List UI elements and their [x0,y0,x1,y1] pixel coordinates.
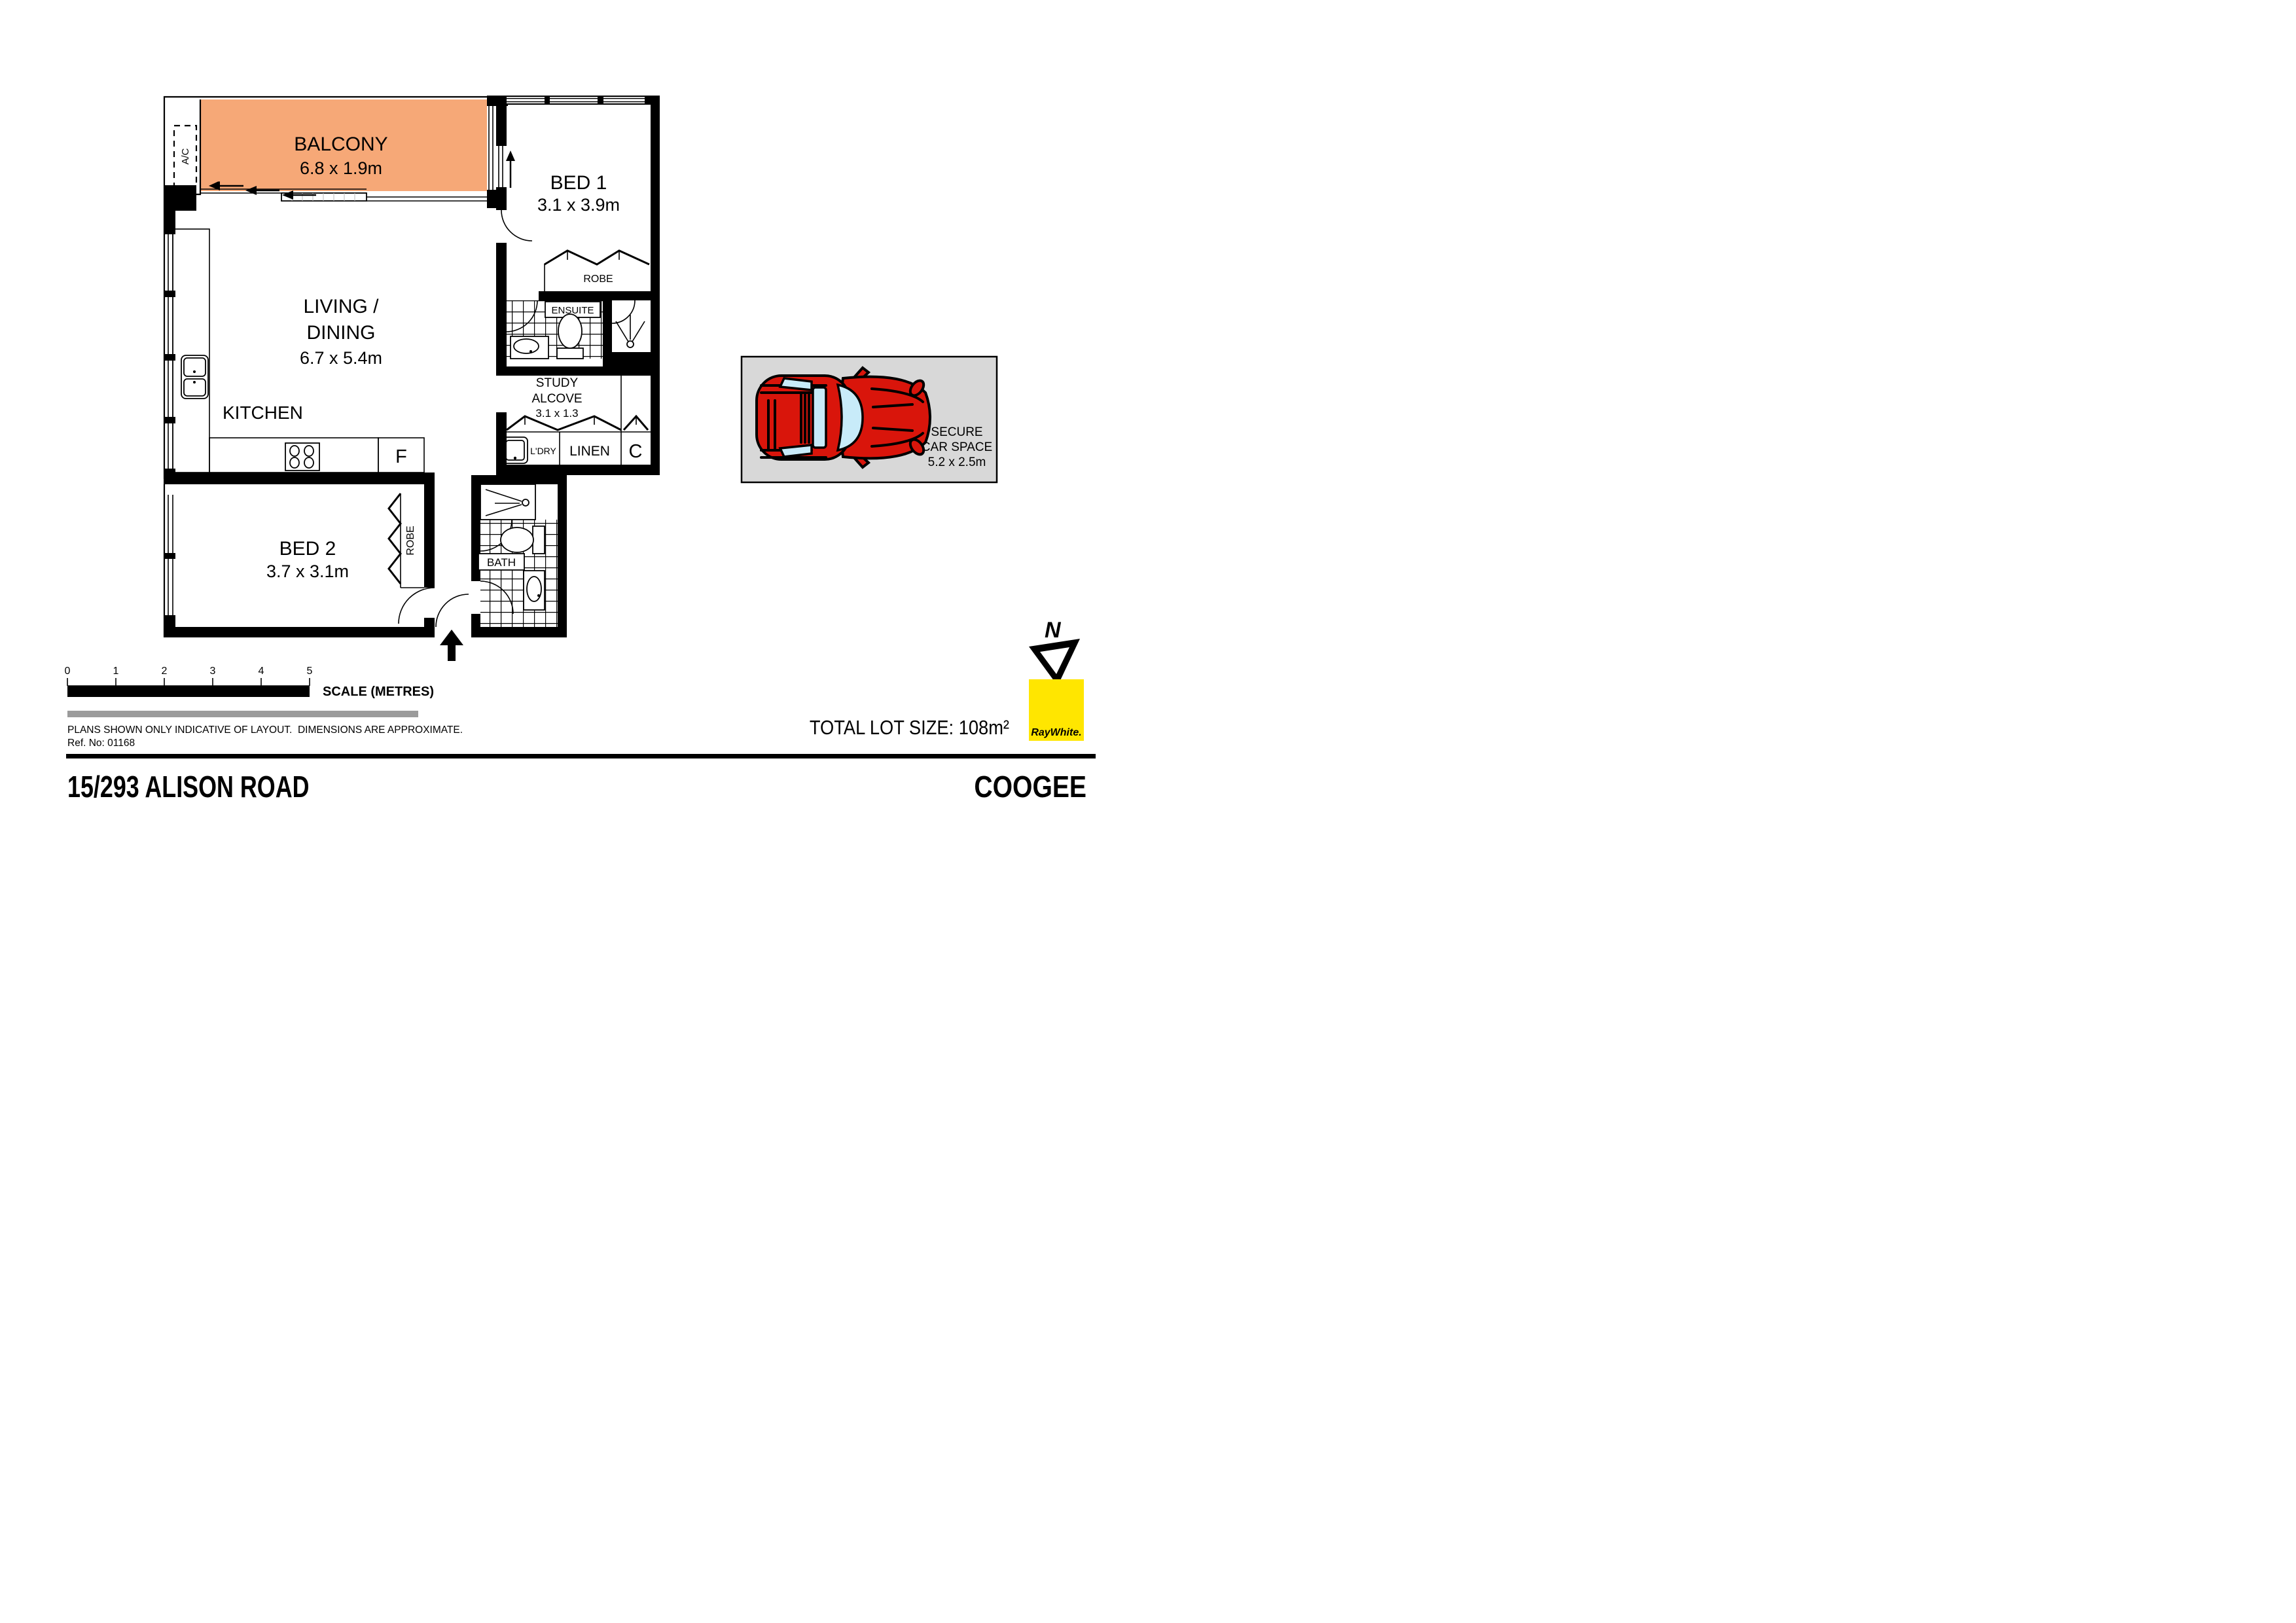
scale-tick-4: 4 [259,666,264,677]
ref-no: Ref. No: 01168 [67,738,135,749]
north-label: N [1045,618,1062,643]
study-dims: 3.1 x 1.3 [535,407,578,419]
toilet-icon [557,314,583,359]
scale-label: SCALE (METRES) [323,685,434,699]
entry-arrow-icon [440,630,463,661]
scale-bar: 0 1 2 3 4 5 SCALE (METRES) [65,666,434,717]
ac-unit: A/C [169,99,200,194]
north-arrow-icon: N [1029,618,1080,686]
ensuite-shower [612,300,645,348]
bed1-robe: ROBE [545,251,649,291]
scale-tick-5: 5 [307,666,313,677]
kitchen: F KITCHEN [173,229,424,473]
scale-tick-0: 0 [65,666,71,677]
raywhite-logo-text: RayWhite. [1031,727,1081,738]
balcony-room: A/C BALCONY 6.8 x 1.9m [164,96,508,211]
bed1-dims: 3.1 x 3.9m [537,195,620,215]
living-dims: 6.7 x 5.4m [300,348,382,368]
bed1-room: BED 1 3.1 x 3.9m ROBE [487,96,660,300]
cupboard-label: C [629,441,643,462]
study-line2: ALCOVE [531,392,582,406]
bed2-robe-label: ROBE [405,526,416,555]
cooktop-icon [285,443,319,471]
floor-plan-canvas: A/C BALCONY 6.8 x 1.9m [0,0,1148,811]
basin-icon [511,336,548,359]
entry [436,594,469,661]
balcony-dims: 6.8 x 1.9m [300,158,382,178]
laundry-label: L'DRY [530,446,556,456]
scale-tick-2: 2 [162,666,168,677]
total-lot-size: TOTAL LOT SIZE: 108m² [810,717,1009,739]
linen-label: LINEN [569,444,610,459]
car-space: SECURE CAR SPACE 5.2 x 2.5m [742,357,997,482]
disclaimer: PLANS SHOWN ONLY INDICATIVE OF LAYOUT. D… [67,724,463,736]
bath-label: BATH [487,556,516,569]
car-space-line2: CAR SPACE [922,440,992,454]
living-left-wall [164,209,175,484]
living-line1: LIVING / [303,296,379,317]
raywhite-logo: RayWhite. [1029,679,1084,741]
basin-icon [524,571,545,610]
balcony-name: BALCONY [294,134,387,155]
car-space-dims: 5.2 x 2.5m [928,455,986,469]
bed1-windows [501,97,645,103]
footer-rule [66,754,1096,758]
floor-plan-page: A/C BALCONY 6.8 x 1.9m [0,0,1148,811]
car-icon [757,368,930,467]
suburb: COOGEE [974,770,1086,804]
fridge-label: F [395,446,407,467]
bed2-name: BED 2 [279,538,336,560]
kitchen-sink-icon [181,355,208,399]
study-alcove: STUDY ALCOVE 3.1 x 1.3 [507,376,648,432]
address: 15/293 ALISON ROAD [67,770,310,804]
bed1-name: BED 1 [550,172,607,194]
bed1-door-arc [501,210,532,241]
study-line1: STUDY [536,376,579,390]
footer: PLANS SHOWN ONLY INDICATIVE OF LAYOUT. D… [66,717,1096,804]
living-room: LIVING / DINING 6.7 x 5.4m [300,296,382,368]
bed1-robe-label: ROBE [583,274,613,285]
bed2-robe: ROBE [389,493,424,588]
scale-tick-1: 1 [113,666,119,677]
ensuite-room: ENSUITE [496,300,660,376]
ac-label: A/C [180,148,191,164]
car-space-line1: SECURE [931,425,982,439]
fridge-space: F [378,438,424,473]
scale-tick-3: 3 [210,666,216,677]
bath-room: BATH [471,475,567,637]
bed2-room: BED 2 3.7 x 3.1m ROBE [164,473,435,637]
living-line2: DINING [307,322,376,344]
bed2-dims: 3.7 x 3.1m [266,562,349,581]
kitchen-label: KITCHEN [223,402,303,423]
balcony-access-arrow-icon [506,151,515,188]
toilet-icon [501,526,545,554]
